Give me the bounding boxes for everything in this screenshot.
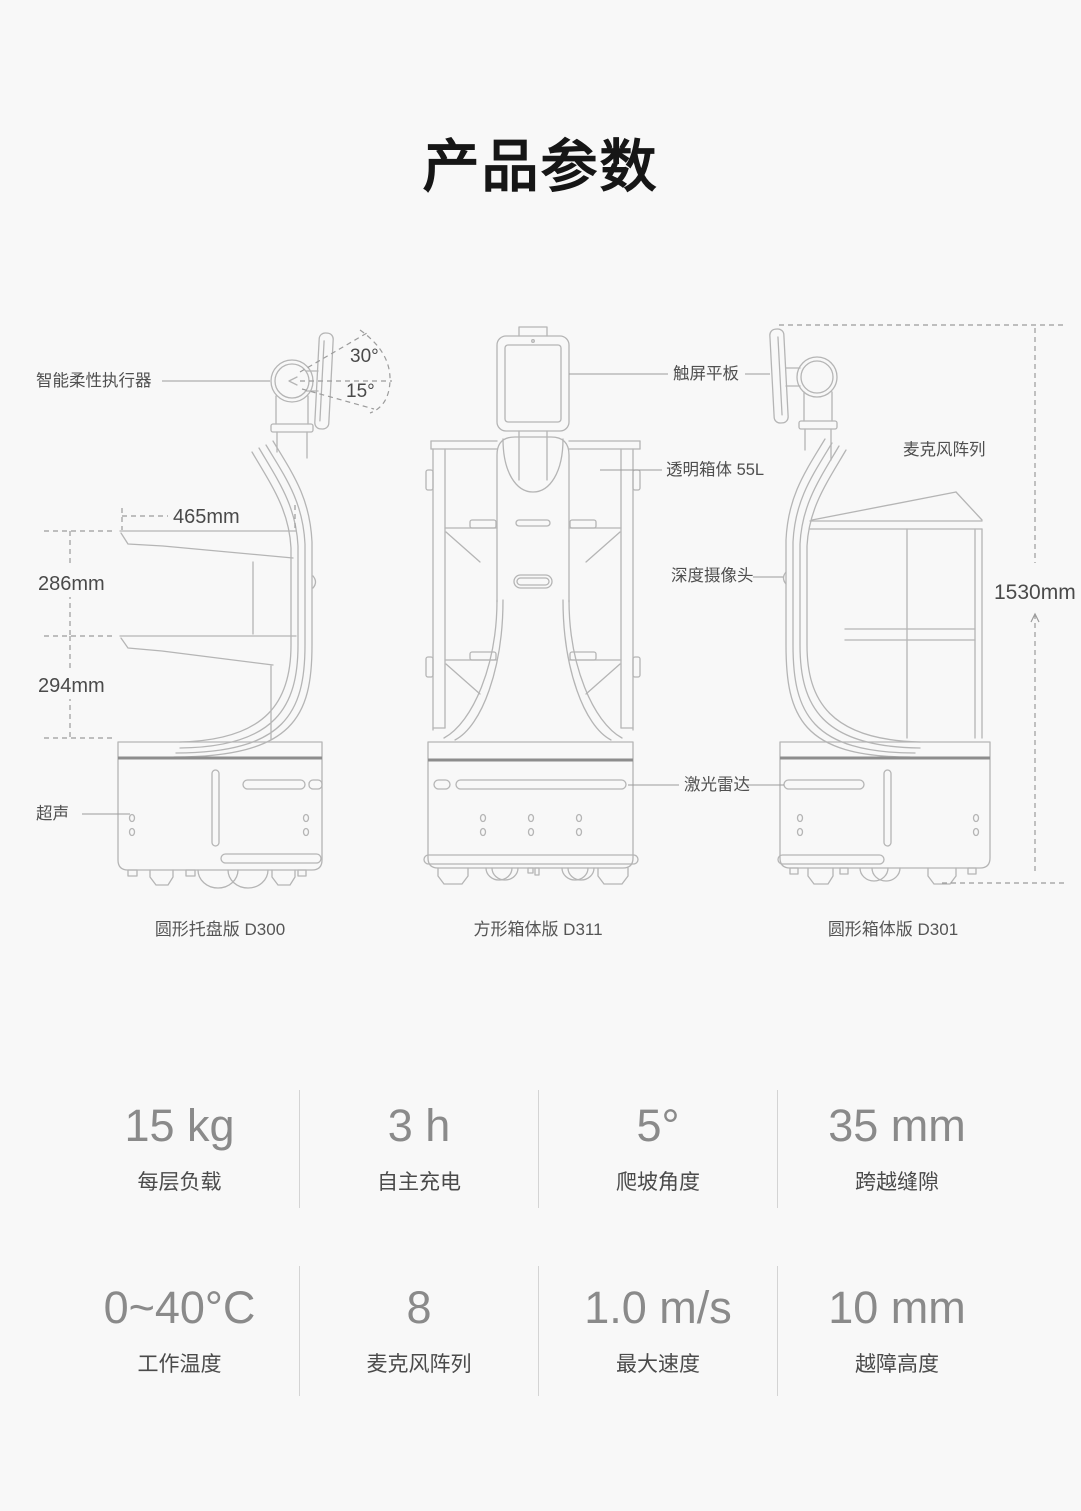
spec-gap-crossing: 35 mm 跨越缝隙 [777,1090,1016,1208]
label-depth-camera: 深度摄像头 [671,567,754,587]
dim-1530mm: 1530mm [992,579,1078,606]
spec-temperature: 0~40°C 工作温度 [60,1266,299,1396]
d301-drawing [770,329,990,884]
label-touchscreen: 触屏平板 [673,365,739,385]
spec-payload-label: 每层负载 [138,1166,222,1196]
spec-temperature-value: 0~40°C [104,1285,256,1330]
spec-row-1: 15 kg 每层负载 3 h 自主充电 5° 爬坡角度 35 mm 跨越缝隙 [60,1090,1016,1208]
d311-drawing [424,327,640,884]
spec-obstacle-height-label: 越障高度 [855,1348,939,1378]
spec-mic-array: 8 麦克风阵列 [299,1266,538,1396]
spec-obstacle-height-value: 10 mm [828,1285,966,1330]
caption-d311: 方形箱体版 D311 [473,915,602,940]
product-spec-page: 产品参数 [0,0,1081,1511]
label-angle-15: 15° [346,381,375,404]
dim-465mm: 465mm [173,505,240,529]
spec-payload: 15 kg 每层负载 [60,1090,299,1208]
label-transparent-box: 透明箱体 55L [666,461,764,481]
spec-gap-crossing-value: 35 mm [828,1103,966,1148]
robot-diagrams [0,0,1081,1000]
label-smart-actuator: 智能柔性执行器 [36,372,152,392]
label-lidar: 激光雷达 [684,776,750,796]
spec-row-2: 0~40°C 工作温度 8 麦克风阵列 1.0 m/s 最大速度 10 mm 越… [60,1266,1016,1396]
spec-mic-array-label: 麦克风阵列 [367,1348,472,1378]
spec-climb-angle-label: 爬坡角度 [616,1166,700,1196]
spec-charging-label: 自主充电 [377,1166,461,1196]
spec-max-speed: 1.0 m/s 最大速度 [538,1266,777,1396]
dim-286mm: 286mm [36,571,107,597]
label-ultrasound: 超声 [36,805,69,825]
spec-obstacle-height: 10 mm 越障高度 [777,1266,1016,1396]
label-angle-30: 30° [350,346,379,369]
d300-drawing [118,333,334,888]
spec-payload-value: 15 kg [124,1103,234,1148]
caption-d301: 圆形箱体版 D301 [828,915,958,940]
spec-max-speed-label: 最大速度 [616,1348,700,1378]
spec-temperature-label: 工作温度 [138,1348,222,1378]
spec-gap-crossing-label: 跨越缝隙 [855,1166,939,1196]
spec-climb-angle-value: 5° [636,1103,679,1148]
caption-d300: 圆形托盘版 D300 [155,915,285,940]
base-separator-bands [118,758,990,760]
spec-charging-value: 3 h [388,1103,451,1148]
label-mic-array: 麦克风阵列 [903,441,986,461]
spec-charging: 3 h 自主充电 [299,1090,538,1208]
spec-max-speed-value: 1.0 m/s [584,1285,732,1330]
dim-294mm: 294mm [36,673,107,699]
spec-climb-angle: 5° 爬坡角度 [538,1090,777,1208]
spec-mic-array-value: 8 [406,1285,431,1330]
dimension-lines [44,325,1066,883]
